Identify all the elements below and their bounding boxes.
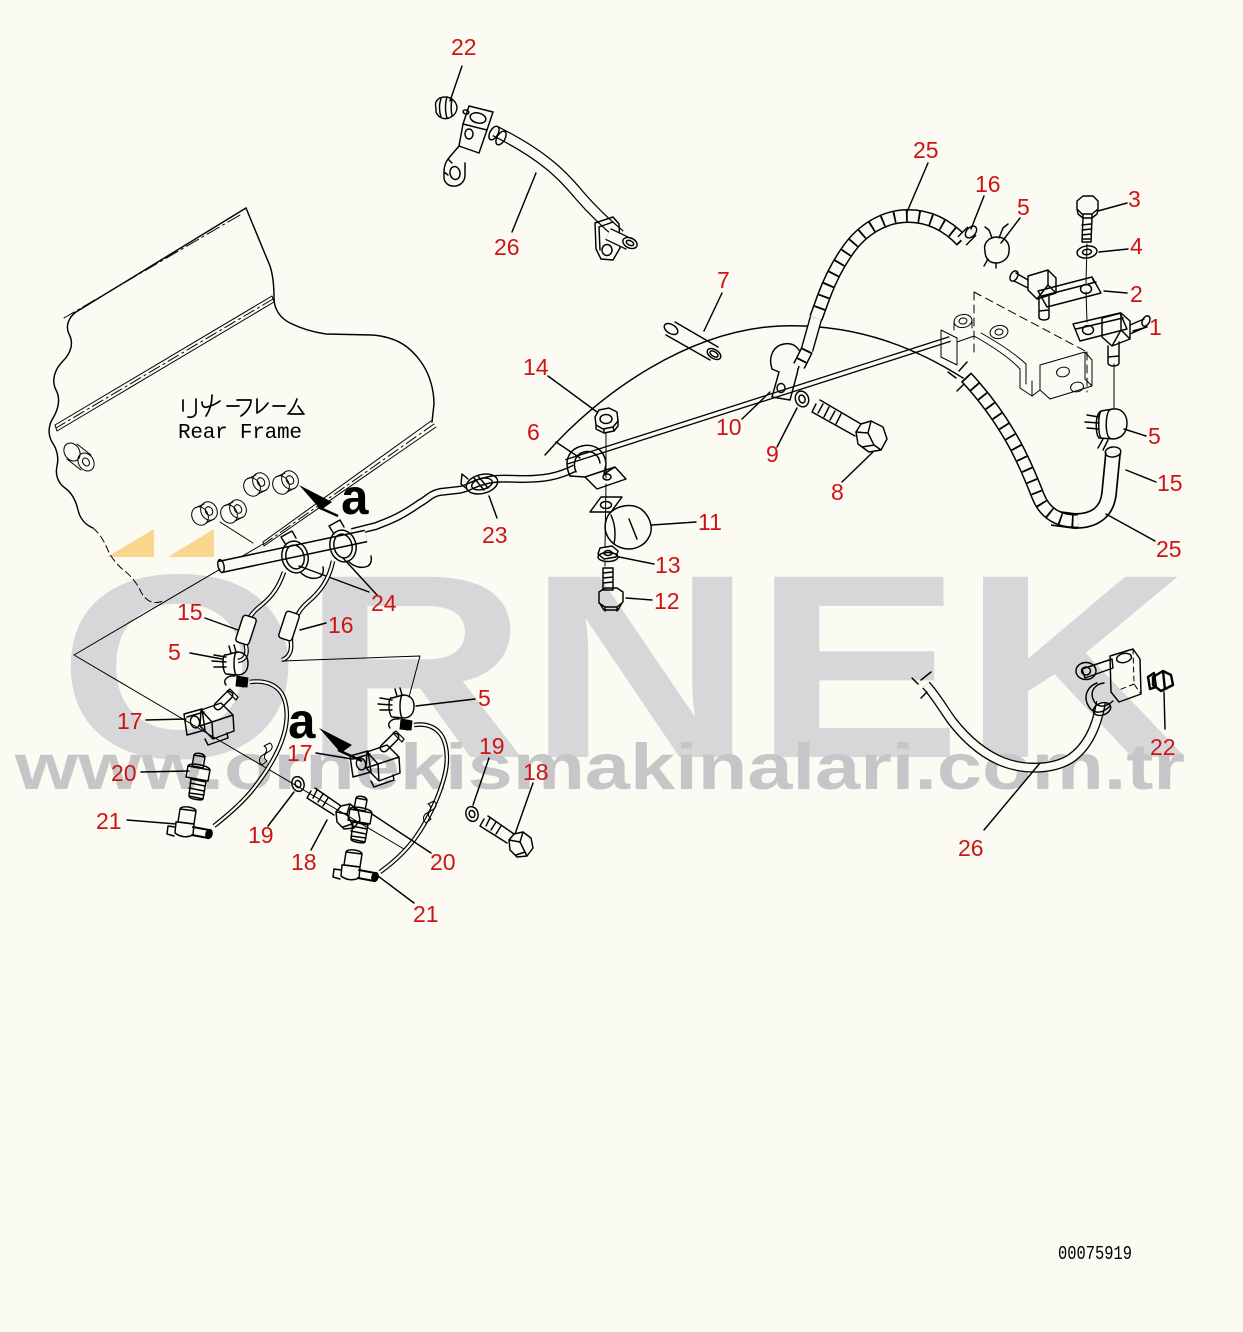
svg-text:5: 5	[1017, 194, 1030, 220]
svg-text:20: 20	[430, 849, 456, 875]
svg-text:25: 25	[913, 137, 939, 163]
svg-text:18: 18	[523, 759, 549, 785]
svg-text:26: 26	[494, 234, 520, 260]
svg-text:11: 11	[698, 509, 722, 535]
svg-text:00075919: 00075919	[1058, 1243, 1132, 1265]
svg-text:22: 22	[1150, 734, 1176, 760]
svg-text:1: 1	[1149, 314, 1162, 340]
svg-text:5: 5	[478, 685, 491, 711]
svg-text:8: 8	[831, 479, 844, 505]
svg-text:20: 20	[111, 760, 137, 786]
svg-text:19: 19	[248, 822, 274, 848]
svg-text:4: 4	[1130, 233, 1143, 259]
svg-text:15: 15	[1157, 470, 1183, 496]
svg-text:3: 3	[1128, 186, 1141, 212]
svg-text:14: 14	[523, 354, 549, 380]
svg-text:21: 21	[413, 901, 439, 927]
svg-text:7: 7	[717, 267, 730, 293]
svg-text:a: a	[340, 473, 370, 530]
svg-text:10: 10	[716, 414, 742, 440]
svg-text:17: 17	[117, 708, 143, 734]
svg-text:Rear Frame: Rear Frame	[178, 422, 302, 445]
svg-text:19: 19	[479, 733, 505, 759]
svg-text:9: 9	[766, 441, 779, 467]
svg-text:5: 5	[168, 639, 181, 665]
svg-text:6: 6	[527, 419, 540, 445]
svg-text:5: 5	[1148, 423, 1161, 449]
svg-text:a: a	[287, 697, 317, 754]
svg-text:21: 21	[96, 808, 122, 834]
svg-text:22: 22	[451, 34, 477, 60]
svg-text:2: 2	[1130, 281, 1143, 307]
svg-text:13: 13	[655, 552, 681, 578]
svg-text:15: 15	[177, 599, 203, 625]
svg-text:23: 23	[482, 522, 508, 548]
svg-text:12: 12	[654, 588, 680, 614]
svg-text:16: 16	[975, 171, 1001, 197]
svg-text:24: 24	[371, 590, 397, 616]
svg-text:26: 26	[958, 835, 984, 861]
svg-text:25: 25	[1156, 536, 1182, 562]
svg-text:18: 18	[291, 849, 317, 875]
svg-text:16: 16	[328, 612, 354, 638]
